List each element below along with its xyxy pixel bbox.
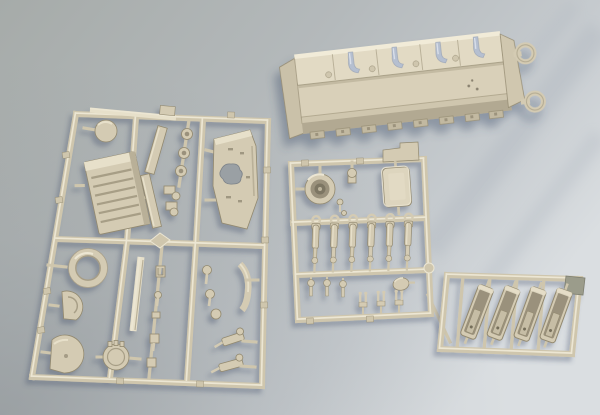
hull-sponson-block <box>465 113 480 122</box>
rail-stub <box>261 237 268 243</box>
hull-sponson-block <box>362 125 377 134</box>
rail-stub <box>306 318 313 324</box>
rail-stub <box>37 326 45 333</box>
hull-sponson-block <box>336 128 351 137</box>
rail-stub <box>366 316 373 322</box>
rail-stub <box>196 381 203 387</box>
rail-stub <box>116 378 123 384</box>
part-wheel-hub <box>179 148 190 159</box>
hull-sponson-block <box>310 131 325 140</box>
rail-stub <box>227 112 234 118</box>
rail-stub <box>43 287 51 294</box>
rail-stub <box>260 302 267 308</box>
photo-stage <box>0 0 600 415</box>
rail-stub <box>55 196 63 203</box>
part-wheel-hub <box>182 129 193 140</box>
rail-stub <box>62 151 70 158</box>
part-wheel-hub <box>176 166 187 177</box>
rail-junction-knob <box>424 263 434 273</box>
hull-sponson-block <box>489 110 504 119</box>
hull-sponson-block <box>439 116 454 125</box>
hull-sponson-block <box>413 119 428 128</box>
rail-stub <box>301 160 308 166</box>
rail-stub <box>263 167 270 173</box>
hull-sponson-block <box>388 122 403 131</box>
rail-stub <box>356 158 363 164</box>
model-kit-photo <box>0 0 600 415</box>
